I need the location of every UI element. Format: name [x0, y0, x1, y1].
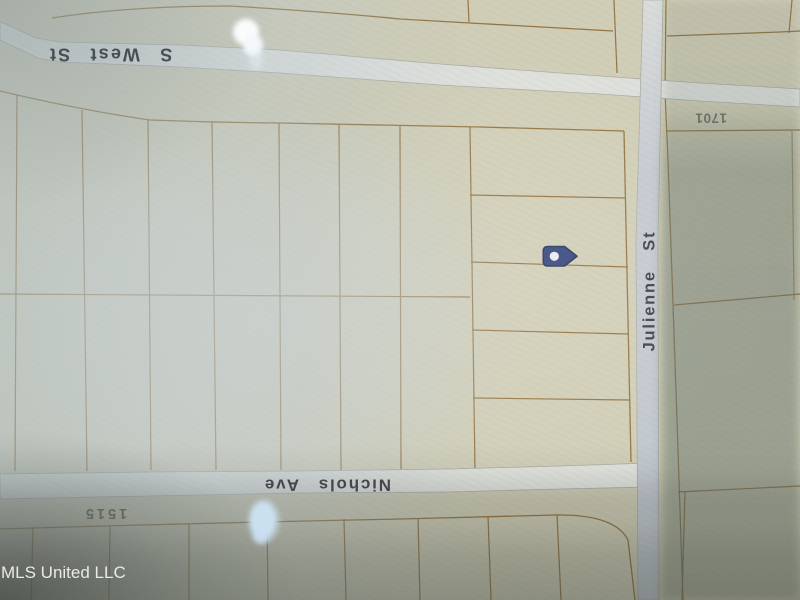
svg-text:MLS United LLC: MLS United LLC	[1, 563, 126, 582]
